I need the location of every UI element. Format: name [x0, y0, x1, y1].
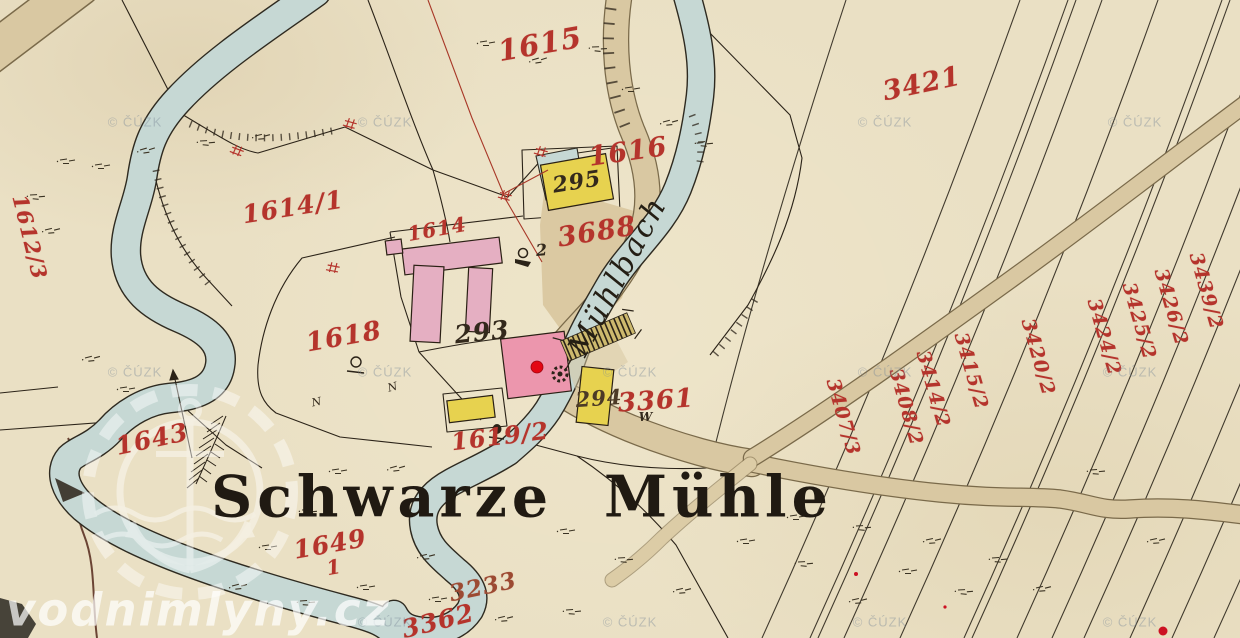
base-map-svg: [0, 0, 1240, 638]
building-pink-right: [465, 267, 492, 332]
strip-field-lines: [714, 0, 1240, 638]
building-294-yellow: [576, 366, 614, 425]
house-symbol-icon: [515, 249, 531, 268]
cadastral-map-canvas: 1615 3421 1616 1614/1 1612/3 1614 3688 1…: [0, 0, 1240, 638]
mill-marker-dot: [531, 361, 543, 373]
watermark-gear-logo: [88, 390, 292, 594]
building-pink-left: [410, 265, 444, 342]
streams: [64, 0, 701, 638]
red-dot-corner: [1159, 627, 1168, 636]
red-dot-small-1: [854, 572, 858, 576]
dark-blob: [0, 598, 36, 638]
red-dot-small-2: [943, 605, 946, 608]
building-small-yellow: [447, 395, 495, 422]
building-pink-sliver: [385, 239, 403, 255]
well-symbol-icon: [347, 357, 364, 373]
